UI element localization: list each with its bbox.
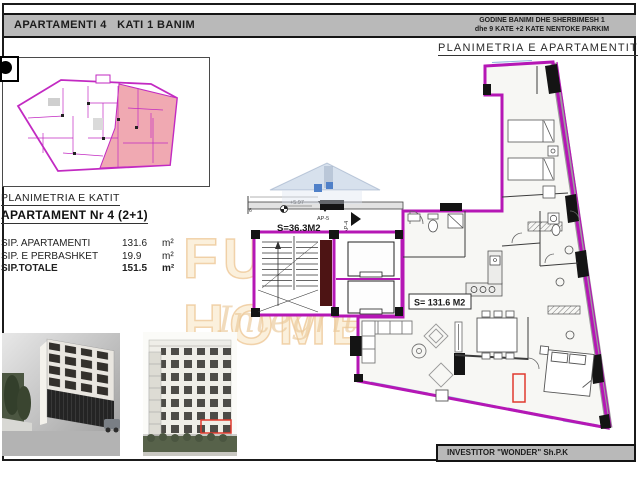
key-plan-title: PLANIMETRIA E KATIT	[1, 192, 120, 204]
title-bar: APARTAMENTI 4 KATI 1 BANIM GODINE BANIMI…	[4, 13, 636, 38]
area-table: SIP. APARTAMENTI131.6m² SIP. E PERBASHKE…	[1, 238, 174, 276]
apartment-plan-title: PLANIMETRIA E APARTAMENTIT	[438, 42, 638, 54]
building-description-line1: GODINE BANIMI DHE SHERBIMESH 1	[444, 17, 640, 26]
investor-bar: INVESTITOR "WONDER" Sh.P.K	[436, 444, 636, 462]
plan-sheet: { "header": { "left_title": "APARTAMENTI…	[0, 0, 640, 480]
photo-building-elevation-image	[143, 332, 237, 456]
north-dot	[0, 61, 12, 74]
key-plan	[2, 57, 210, 187]
area-row-common: SIP. E PERBASHKET19.9m²	[1, 251, 174, 264]
investor-label: INVESTITOR "WONDER" Sh.P.K	[447, 448, 568, 457]
photo-building-elevation	[143, 332, 237, 456]
photo-building-exterior-image	[2, 333, 120, 456]
area-row-apartment: SIP. APARTAMENTI131.6m²	[1, 238, 174, 251]
key-plan-drawing	[3, 58, 209, 186]
north-symbol-icon	[0, 56, 19, 82]
photo-building-exterior	[2, 333, 120, 456]
apartment-heading: APARTAMENT Nr 4 (2+1)	[1, 208, 148, 222]
building-description-line2: dhe 9 KATE +2 KATE NENTOKE PARKIM	[444, 26, 640, 35]
area-row-total: SIP.TOTALE151.5m²	[1, 263, 174, 276]
sheet-title: APARTAMENTI 4 KATI 1 BANIM	[14, 19, 195, 31]
building-description: GODINE BANIMI DHE SHERBIMESH 1 dhe 9 KAT…	[444, 17, 640, 34]
